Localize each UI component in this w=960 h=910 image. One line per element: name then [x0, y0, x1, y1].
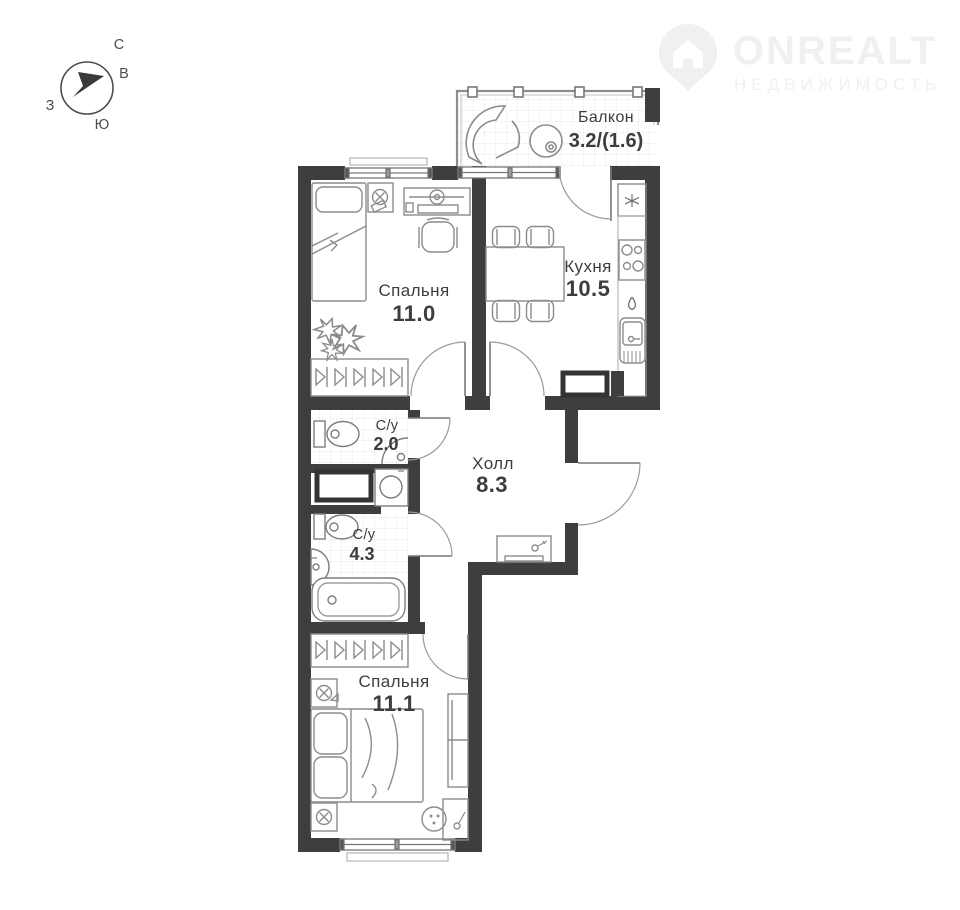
hanger-icon	[316, 640, 327, 660]
stove	[619, 240, 645, 280]
wc-small-door	[408, 418, 450, 460]
floor-plan: ONREALT НЕДВИЖИМОСТЬ С В З Ю	[0, 0, 960, 910]
glazing-joint	[514, 87, 523, 97]
double-bed	[311, 709, 423, 802]
wardrobe	[311, 359, 408, 396]
watermark-brand: ONREALT	[733, 29, 937, 73]
hanger-icon	[354, 640, 365, 660]
compass-east-label: В	[119, 66, 129, 82]
hanger-icon	[335, 640, 346, 660]
compass: С В З Ю	[46, 37, 129, 133]
compass-south-label: Ю	[95, 117, 110, 133]
nightstand	[311, 679, 338, 707]
onrealt-pin-icon	[659, 24, 717, 91]
doors	[408, 167, 640, 679]
single-bed	[312, 183, 366, 301]
bedroom-1-area: 11.0	[392, 301, 435, 326]
chair-icon	[527, 227, 554, 248]
compass-circle	[61, 62, 113, 114]
lamp-icon	[317, 686, 332, 701]
wc-large-door	[408, 512, 452, 556]
bedroom-2-furniture	[311, 634, 468, 840]
vent-shaft	[563, 373, 607, 395]
wc-large-area: 4.3	[349, 544, 374, 564]
glazing-joint	[468, 87, 477, 97]
bedroom-1-door	[411, 342, 465, 396]
wc-small-area: 2.0	[373, 434, 398, 454]
balcony-table	[530, 125, 562, 157]
balcony-area: 3.2/(1.6)	[569, 130, 643, 152]
kitchen-door	[490, 342, 544, 396]
wardrobe	[311, 634, 408, 667]
chair-icon	[493, 227, 520, 248]
kitchen-counter	[618, 216, 646, 396]
nightstand	[311, 803, 337, 831]
water-drop-icon	[629, 297, 636, 310]
bedroom-1-label: Спальня	[378, 281, 449, 300]
bedroom-1-window	[345, 158, 432, 178]
kitchen-label: Кухня	[564, 257, 612, 276]
nightstand	[368, 183, 393, 212]
wc-small-label: С/у	[376, 418, 399, 434]
chair-icon	[527, 301, 554, 322]
bedroom-2-door	[423, 634, 468, 679]
toilet	[314, 421, 359, 447]
kitchen-balcony-window	[458, 167, 560, 178]
entrance-door	[578, 463, 640, 525]
hanger-icon	[373, 640, 384, 660]
desk	[404, 188, 470, 215]
hall-furniture	[497, 536, 551, 562]
glazing-joint	[575, 87, 584, 97]
watermark-logo: ONREALT НЕДВИЖИМОСТЬ	[659, 24, 941, 94]
hanger-icon	[391, 367, 402, 387]
hanger-icon	[373, 367, 384, 387]
balcony-label: Балкон	[578, 109, 634, 126]
glazing-joint	[633, 87, 642, 97]
watermark-tagline: НЕДВИЖИМОСТЬ	[734, 75, 941, 94]
hanger-icon	[335, 367, 346, 387]
bedroom-2-window	[340, 839, 455, 861]
shoe-bench	[497, 536, 551, 562]
duct-box	[317, 472, 371, 500]
dresser	[443, 799, 468, 840]
hall-label: Холл	[472, 454, 514, 473]
utility-niche	[317, 469, 408, 506]
hall-area: 8.3	[476, 472, 508, 497]
lamp-icon	[317, 810, 332, 825]
dining-table	[486, 247, 564, 301]
toilet	[314, 514, 358, 539]
wc-large-label: С/у	[353, 527, 376, 543]
compass-arrow-icon	[73, 72, 104, 97]
hanger-icon	[316, 367, 327, 387]
bedroom-2-label: Спальня	[358, 672, 429, 691]
duct-solid	[611, 371, 624, 396]
plant	[311, 314, 366, 364]
hanger-icon	[391, 640, 402, 660]
chair-icon	[493, 301, 520, 322]
bedroom-2-area: 11.1	[372, 691, 415, 716]
compass-west-label: З	[46, 98, 55, 114]
desk-chair	[419, 218, 457, 252]
balcony-door	[559, 167, 611, 221]
compass-north-label: С	[114, 37, 124, 53]
hanger-icon	[354, 367, 365, 387]
snowflake-icon	[625, 194, 639, 207]
kitchen-sink	[620, 318, 645, 363]
washing-machine	[375, 469, 408, 506]
bathtub	[312, 578, 405, 621]
kitchen-area: 10.5	[566, 276, 610, 301]
tv-cabinet	[448, 694, 468, 787]
